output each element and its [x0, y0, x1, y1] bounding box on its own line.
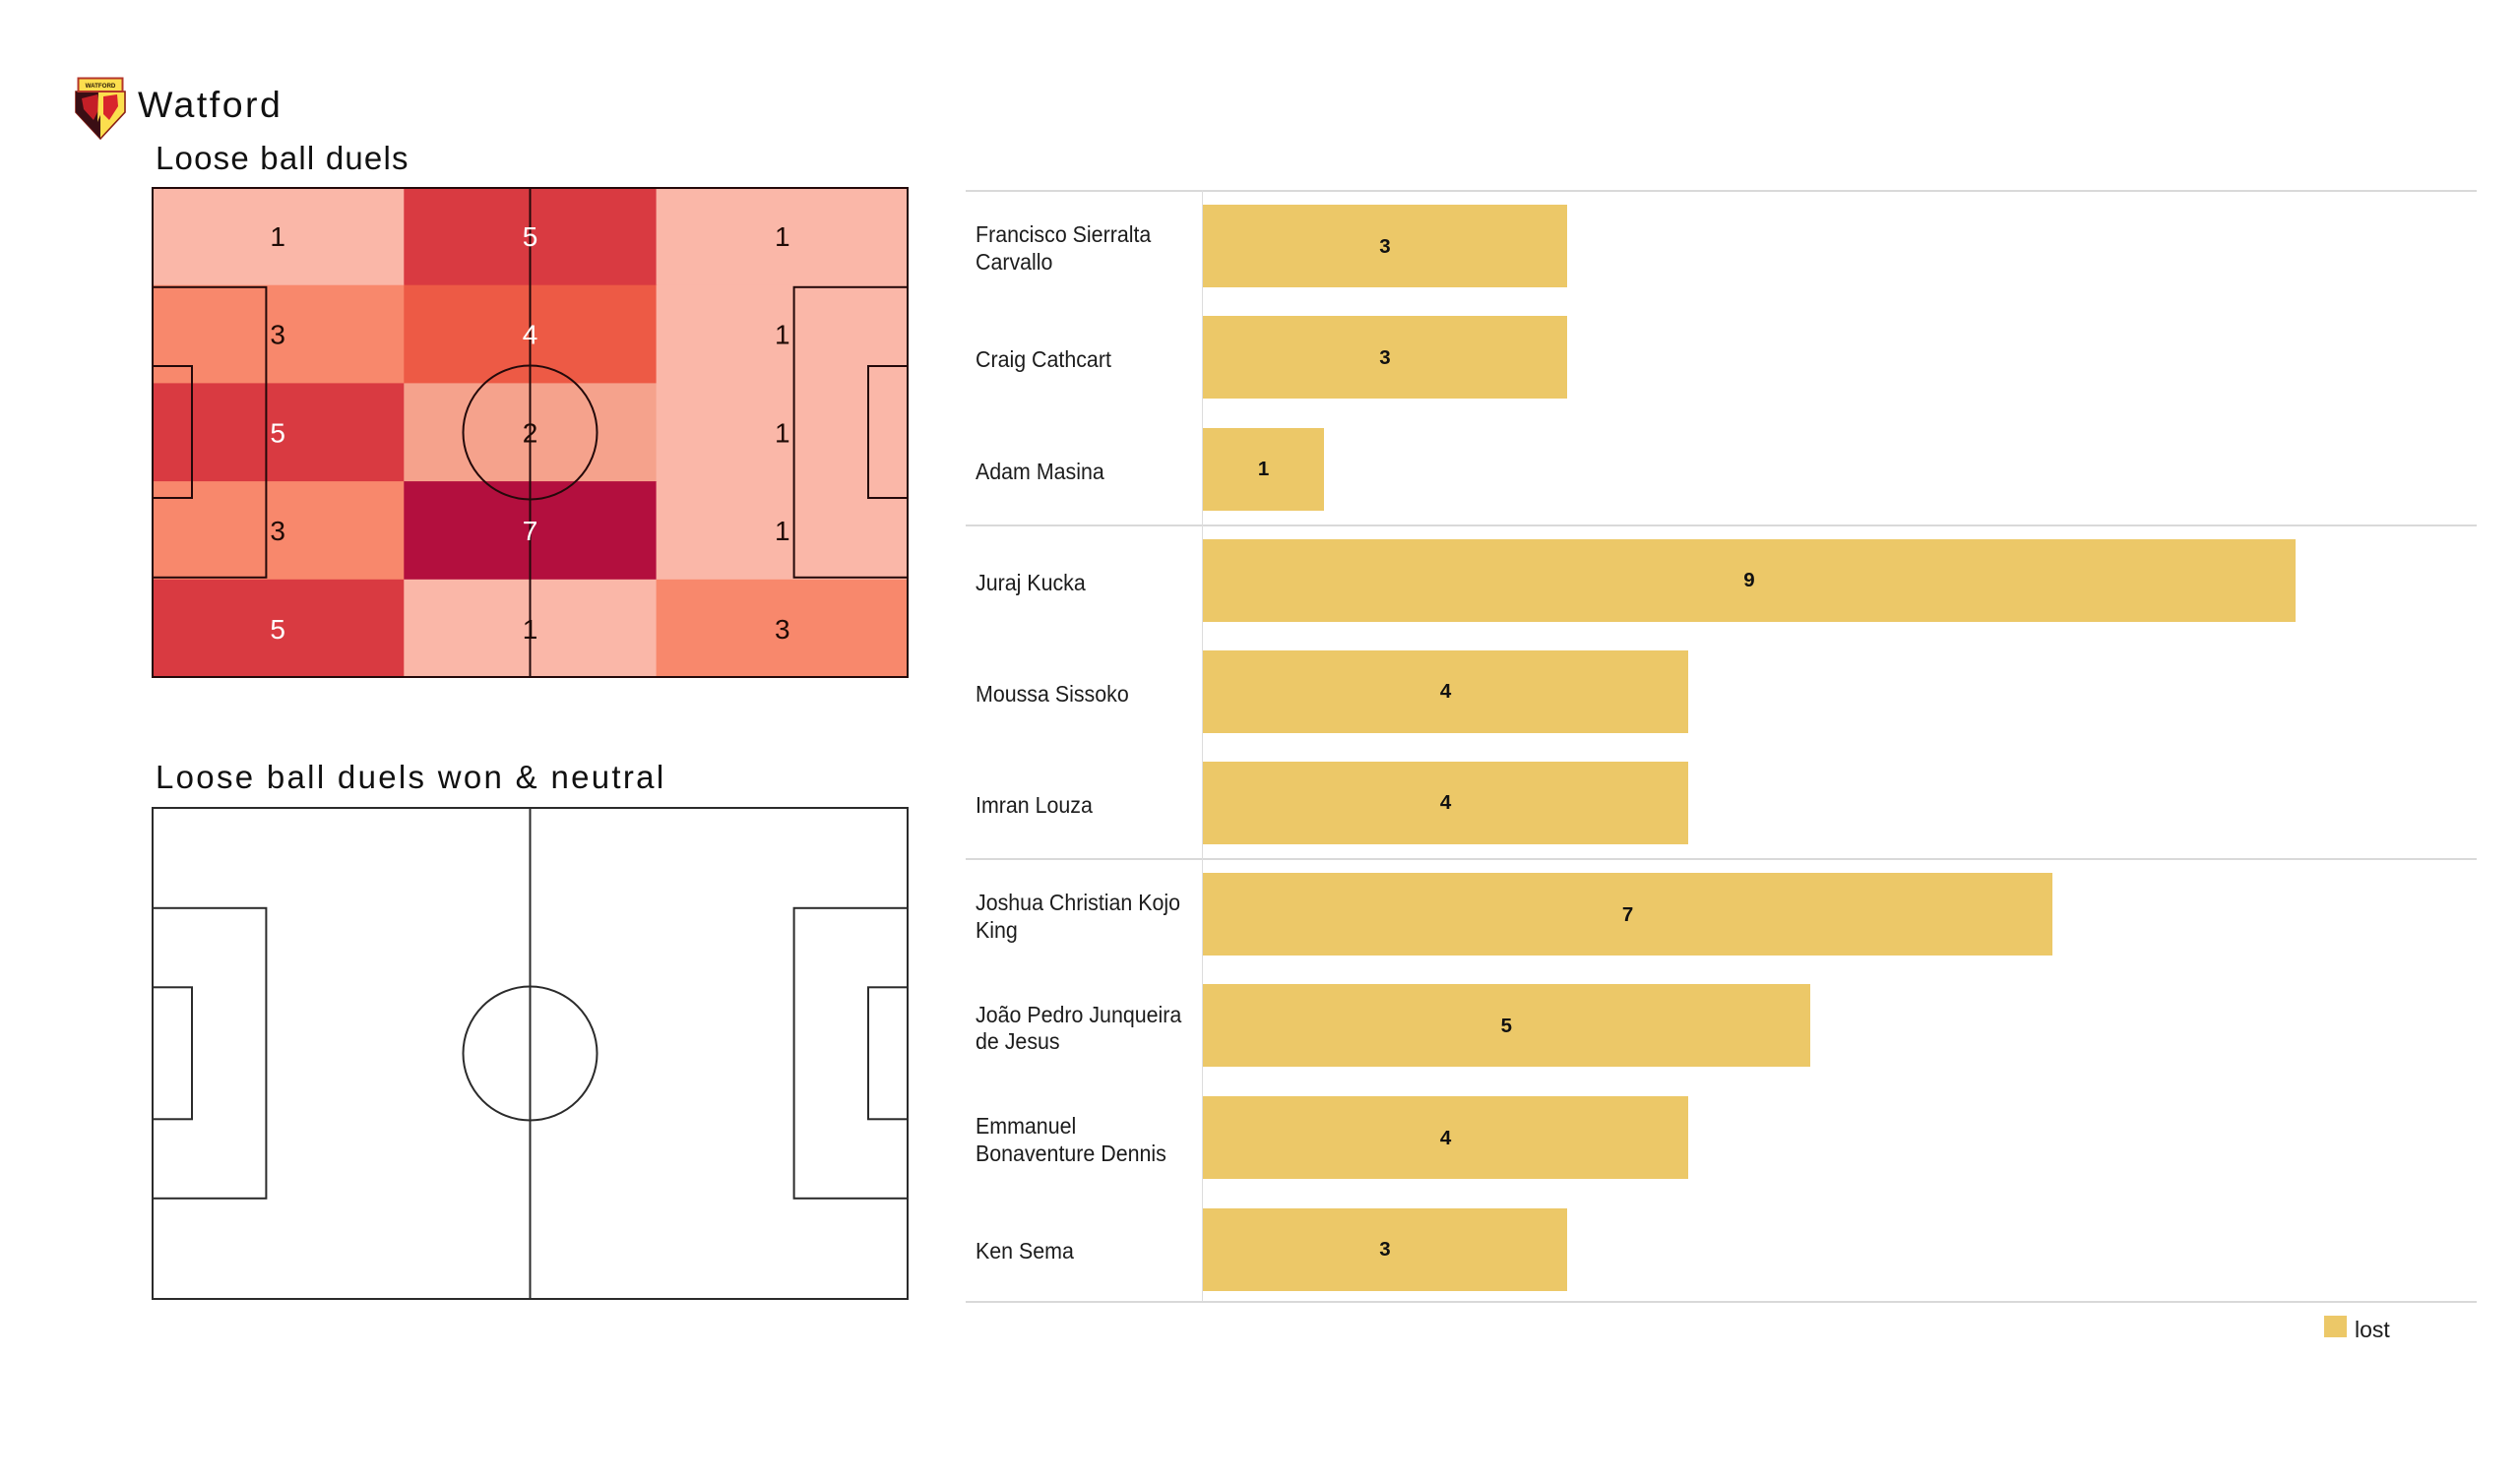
svg-text:3: 3	[270, 516, 285, 546]
svg-text:1: 1	[523, 614, 538, 645]
svg-text:1: 1	[270, 221, 285, 252]
svg-text:WATFORD: WATFORD	[86, 83, 116, 90]
svg-text:1: 1	[775, 516, 790, 546]
svg-text:5: 5	[270, 417, 285, 448]
svg-text:3: 3	[270, 320, 285, 350]
svg-text:5: 5	[523, 221, 538, 252]
svg-text:5: 5	[270, 614, 285, 645]
svg-text:7: 7	[523, 516, 538, 546]
svg-text:3: 3	[775, 614, 790, 645]
svg-text:1: 1	[775, 417, 790, 448]
svg-text:2: 2	[523, 417, 538, 448]
svg-text:1: 1	[775, 221, 790, 252]
svg-text:1: 1	[775, 320, 790, 350]
svg-text:4: 4	[523, 320, 538, 350]
